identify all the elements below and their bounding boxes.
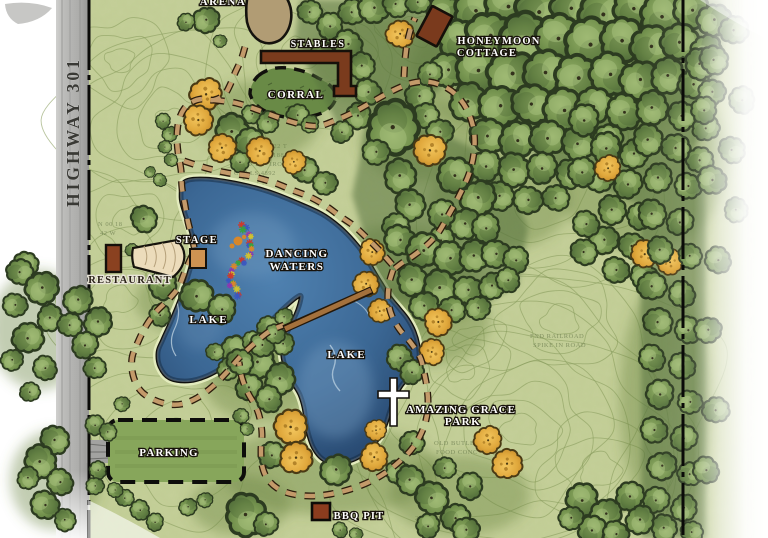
svg-text:STAGE: STAGE xyxy=(176,235,218,246)
svg-text:PARK: PARK xyxy=(445,416,481,428)
svg-text:LAKE: LAKE xyxy=(189,314,228,326)
svg-text:DANCING: DANCING xyxy=(265,248,328,260)
svg-text:RESTAURANT: RESTAURANT xyxy=(88,275,172,286)
svg-text:HIGHWAY 301: HIGHWAY 301 xyxy=(63,57,83,207)
svg-text:COTTAGE: COTTAGE xyxy=(457,48,517,59)
svg-text:CORRAL: CORRAL xyxy=(268,89,325,101)
svg-text:BBQ PIT: BBQ PIT xyxy=(334,511,385,522)
svg-text:LAKE: LAKE xyxy=(327,349,366,361)
svg-text:PARKING: PARKING xyxy=(139,447,199,459)
svg-text:WATERS: WATERS xyxy=(270,261,325,273)
svg-text:STABLES: STABLES xyxy=(291,39,346,50)
svg-text:ARENA: ARENA xyxy=(200,0,247,8)
svg-text:HONEYMOON: HONEYMOON xyxy=(457,36,540,47)
svg-text:AMAZING GRACE: AMAZING GRACE xyxy=(406,404,516,416)
